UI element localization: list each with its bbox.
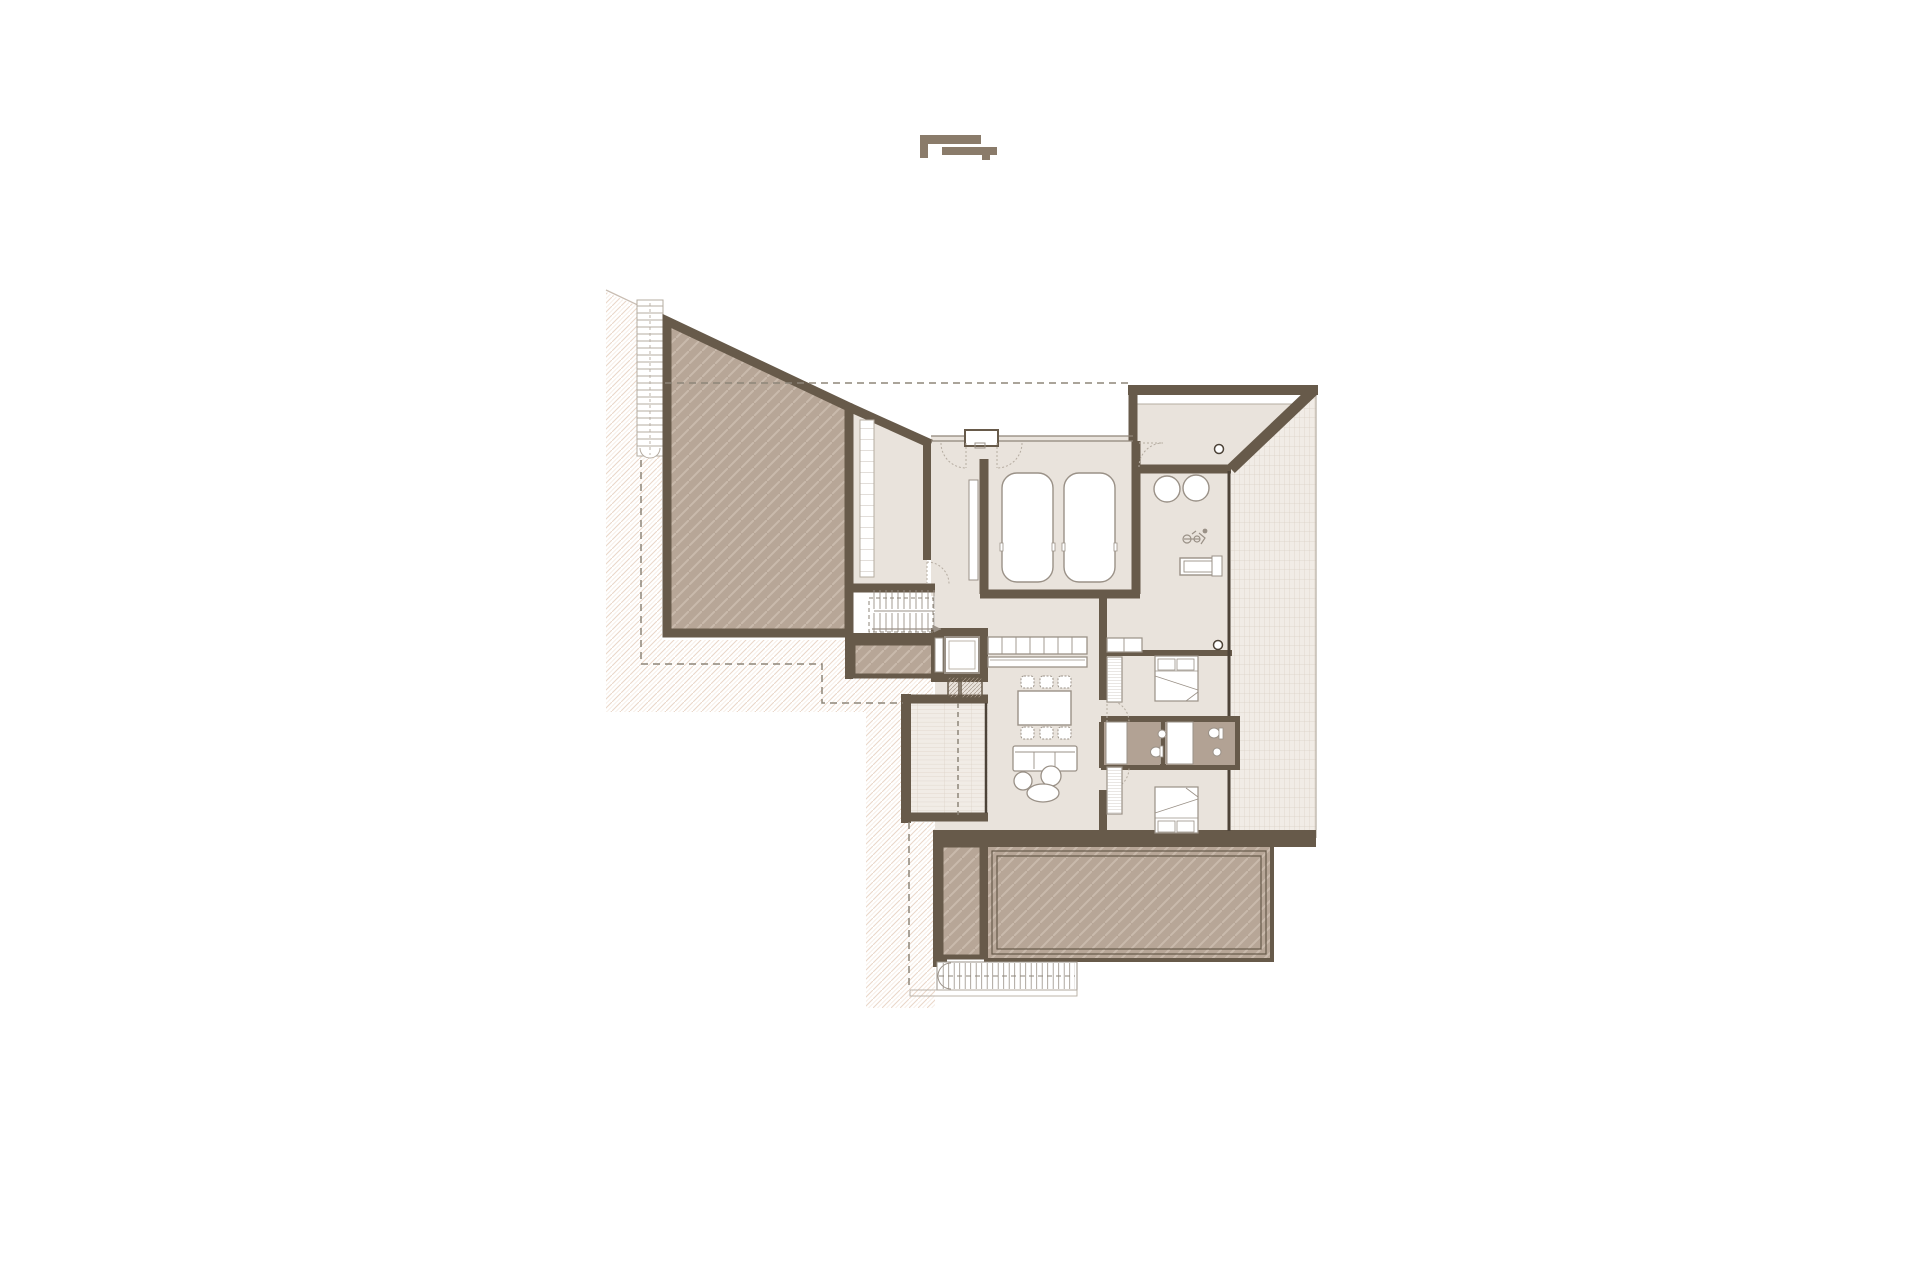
roof-deck-trapezoid	[667, 321, 849, 633]
pouf	[1041, 766, 1061, 786]
shower	[1106, 722, 1127, 764]
coffee-table	[1027, 784, 1059, 802]
shelving-room	[860, 420, 874, 577]
entry-door-frame	[965, 430, 998, 446]
dining-chair	[1021, 676, 1034, 688]
internal-stair	[869, 590, 941, 633]
sink	[1158, 730, 1166, 738]
closet	[1107, 638, 1142, 652]
fitness-stool	[1154, 476, 1180, 502]
balcony-planked	[906, 699, 988, 817]
bathrooms	[1104, 722, 1235, 765]
dining-chair	[1058, 727, 1071, 739]
floor-plan-page	[0, 0, 1920, 1280]
column	[1215, 445, 1224, 454]
dining-chair	[1040, 676, 1053, 688]
kitchen-island	[988, 657, 1087, 667]
dining-chair	[1021, 727, 1034, 739]
car-1	[1002, 473, 1053, 582]
drainage-grate	[910, 962, 1077, 996]
exterior-stair	[637, 300, 663, 458]
sink	[1213, 748, 1221, 756]
terrace-planter	[941, 845, 982, 957]
planter	[853, 643, 935, 676]
vestibule-window-band	[1136, 395, 1306, 404]
chimney-flues	[948, 677, 982, 698]
shower	[1167, 722, 1193, 764]
dining-chair	[1040, 727, 1053, 739]
toilet	[1209, 728, 1220, 738]
fitness-stool	[1183, 475, 1209, 501]
logo-mark	[920, 135, 997, 160]
column	[1214, 641, 1223, 650]
car-2	[1064, 473, 1115, 582]
terrace-deck	[986, 845, 1272, 960]
dining-chair	[1058, 676, 1071, 688]
floor-plan-canvas	[0, 0, 1920, 1280]
pouf	[1014, 772, 1032, 790]
garage-shelf	[969, 480, 978, 580]
dining-table	[1018, 691, 1071, 725]
dining-area	[1018, 676, 1071, 739]
lift-shaft	[945, 637, 979, 673]
